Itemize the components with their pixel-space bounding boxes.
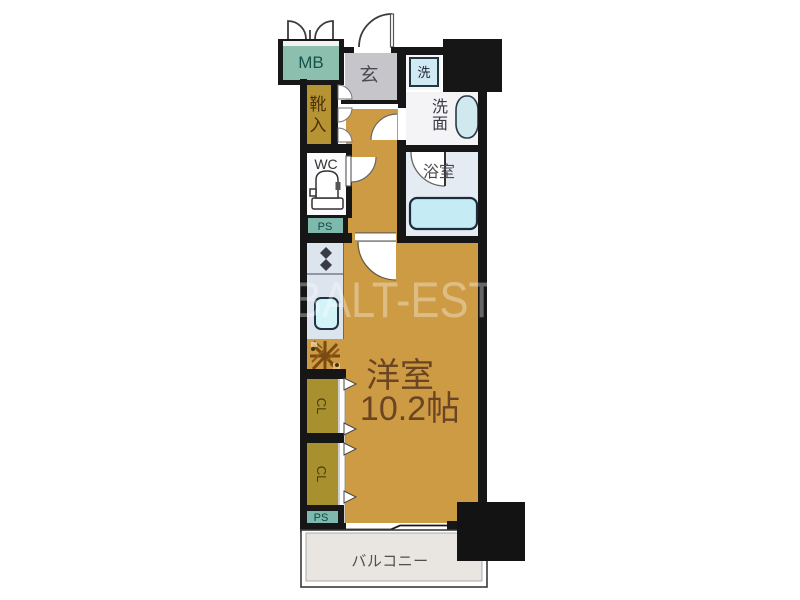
svg-text:靴: 靴 (310, 95, 327, 114)
svg-text:浴室: 浴室 (423, 163, 455, 181)
svg-text:入: 入 (310, 116, 327, 135)
svg-text:BALT-ESTATE: BALT-ESTATE (293, 272, 573, 328)
svg-text:玄: 玄 (359, 64, 378, 86)
svg-text:洗: 洗 (417, 65, 430, 80)
svg-text:CL: CL (314, 398, 329, 415)
svg-text:MB: MB (298, 53, 324, 72)
svg-text:バルコニー: バルコニー (351, 553, 428, 570)
svg-text:PS: PS (314, 512, 329, 524)
svg-text:10.2帖: 10.2帖 (360, 390, 460, 428)
svg-text:洗: 洗 (432, 98, 448, 116)
svg-text:面: 面 (432, 116, 448, 133)
svg-text:PS: PS (318, 221, 333, 233)
svg-text:WC: WC (314, 156, 337, 172)
svg-text:CL: CL (314, 466, 329, 483)
